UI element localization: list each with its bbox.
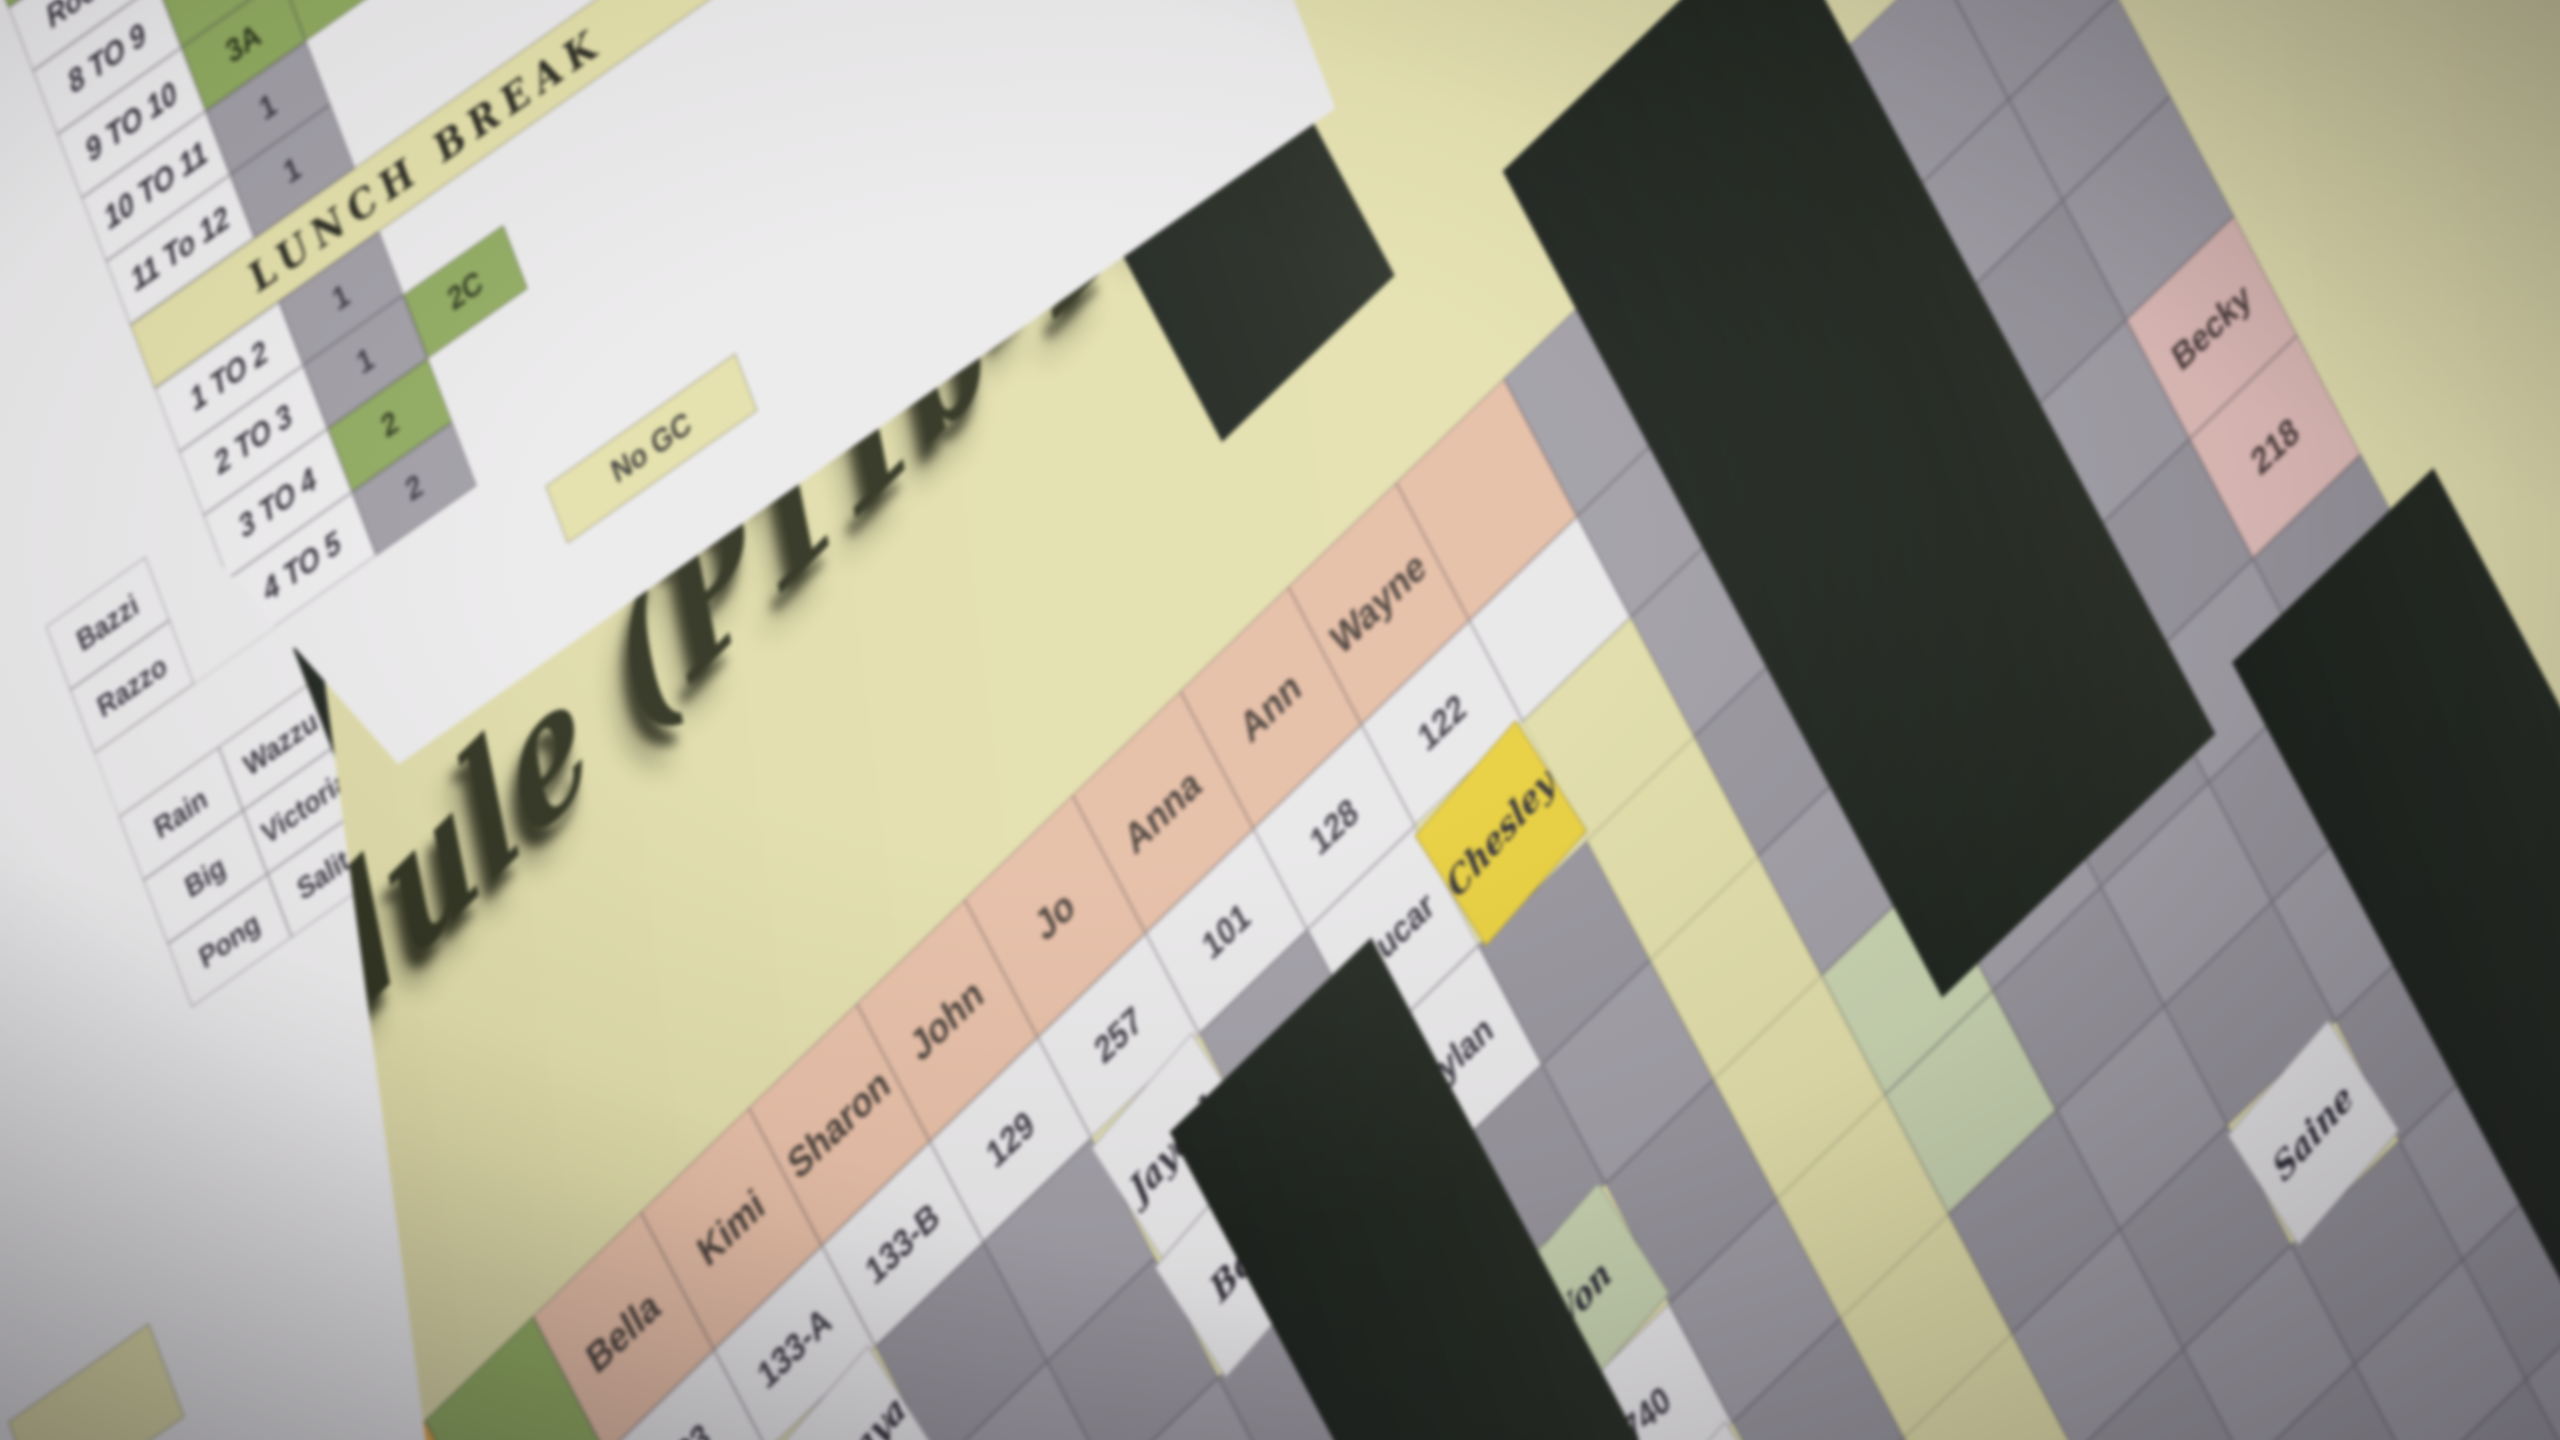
scene: Schedule (P11b-14) 1Abdu748 BellaKimiSha… <box>0 0 2560 1440</box>
yellow-corner-cell <box>8 1323 185 1440</box>
photo-of-printed-schedules: Schedule (P11b-14) 1Abdu748 BellaKimiSha… <box>0 0 2560 1440</box>
